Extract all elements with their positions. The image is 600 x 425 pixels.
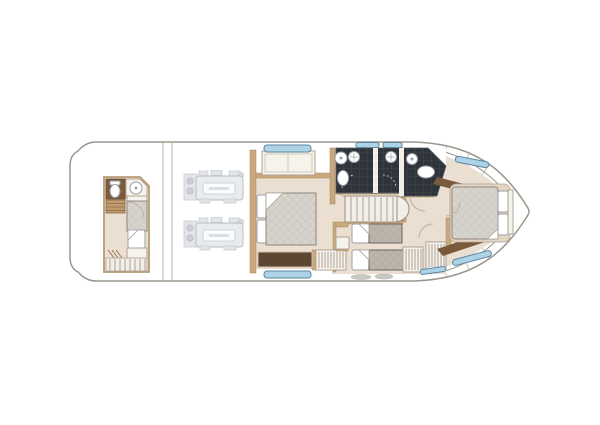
vip-pillow-2 [498, 214, 508, 235]
vip-pillow-1 [498, 191, 508, 212]
twin-wall-bit-1 [336, 222, 348, 227]
stairs-body [345, 196, 397, 222]
wall-engine-room [250, 150, 256, 273]
hatch-top-1 [356, 143, 379, 148]
twin-bed-upper [369, 224, 402, 243]
shower-divider [373, 148, 378, 193]
crew-cabin [104, 177, 149, 272]
nightstand [336, 237, 349, 249]
engine-port [184, 171, 244, 204]
shower-head-starboard [386, 152, 397, 163]
engine-starboard [184, 218, 244, 251]
master-sideboard [262, 151, 315, 175]
window-port-aft-bottom [264, 271, 311, 278]
floor-plan-canvas [0, 0, 600, 425]
hatch-top-2 [383, 143, 402, 148]
mid-bathrooms [335, 148, 402, 193]
master-bench [258, 252, 312, 267]
crew-toilet [110, 185, 120, 198]
crew-sink-drain [135, 187, 138, 190]
twin-bed-lower [369, 250, 403, 270]
shower-head-port [349, 152, 360, 163]
vip-headboard-panel [508, 190, 513, 234]
crew-berth-shelf [127, 196, 147, 201]
staircase [345, 196, 409, 222]
deck-oval-2 [375, 274, 393, 279]
deck-plan-svg [0, 0, 600, 425]
forward-head-divider [399, 148, 404, 196]
crew-ladder [106, 258, 147, 271]
crew-berth-base [127, 248, 147, 258]
crew-steps [106, 200, 125, 213]
forward-toilet [418, 166, 435, 178]
wall-master-right [330, 148, 335, 204]
deck-oval-1 [351, 275, 371, 280]
window-port-aft-top [264, 145, 311, 152]
vip-bed-mattress [452, 187, 498, 239]
mid-toilet [338, 171, 349, 186]
